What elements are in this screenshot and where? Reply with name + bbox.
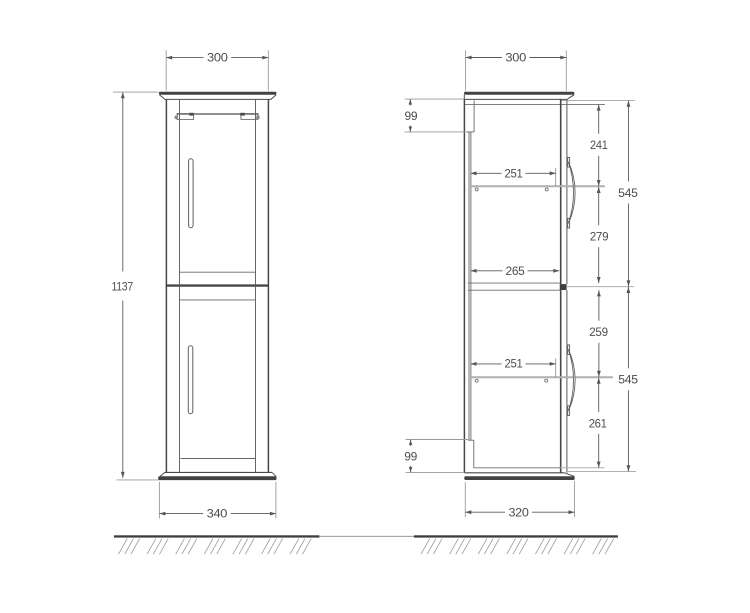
svg-text:320: 320 xyxy=(509,505,530,519)
svg-text:261: 261 xyxy=(589,416,608,430)
svg-text:241: 241 xyxy=(590,138,608,152)
svg-text:251: 251 xyxy=(505,356,524,370)
svg-text:545: 545 xyxy=(618,186,638,200)
svg-text:300: 300 xyxy=(505,51,526,65)
svg-text:99: 99 xyxy=(404,449,417,463)
svg-text:259: 259 xyxy=(589,325,608,339)
svg-text:99: 99 xyxy=(405,109,418,123)
svg-text:279: 279 xyxy=(590,230,609,244)
svg-text:1137: 1137 xyxy=(111,279,133,293)
svg-text:340: 340 xyxy=(207,507,228,521)
svg-text:300: 300 xyxy=(207,51,228,65)
svg-text:265: 265 xyxy=(506,264,526,278)
svg-text:545: 545 xyxy=(618,373,638,387)
svg-text:251: 251 xyxy=(505,166,524,180)
